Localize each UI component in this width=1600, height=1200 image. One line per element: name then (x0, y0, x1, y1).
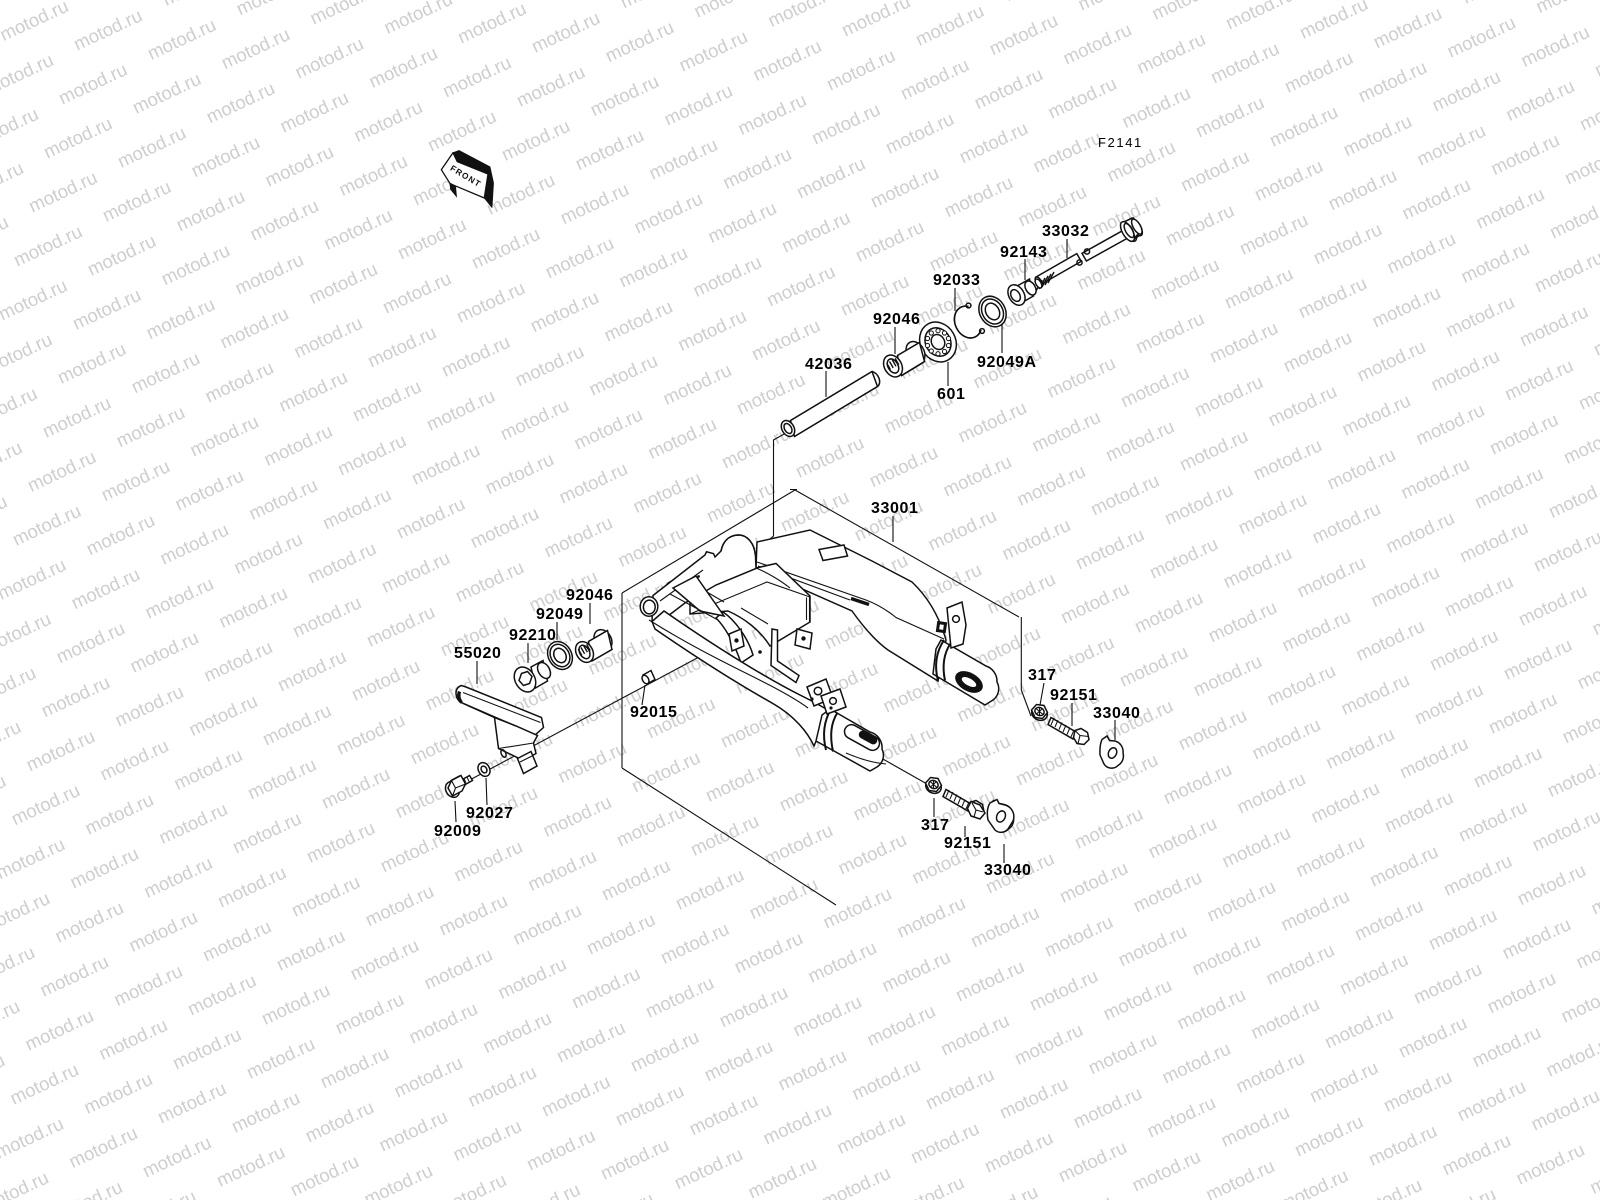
svg-text:33040: 33040 (1093, 705, 1141, 722)
svg-text:92049: 92049 (536, 606, 584, 623)
svg-text:92015: 92015 (630, 704, 678, 721)
svg-text:42036: 42036 (805, 356, 853, 373)
svg-text:92151: 92151 (1050, 687, 1098, 704)
svg-text:317: 317 (1028, 667, 1057, 684)
svg-text:92049A: 92049A (977, 354, 1037, 371)
svg-text:33032: 33032 (1042, 223, 1090, 240)
svg-text:92027: 92027 (466, 805, 514, 822)
svg-text:92143: 92143 (1000, 244, 1048, 261)
svg-text:92046: 92046 (873, 311, 921, 328)
svg-text:92009: 92009 (434, 823, 482, 840)
svg-text:92046: 92046 (566, 587, 614, 604)
svg-text:601: 601 (937, 386, 966, 403)
svg-text:33040: 33040 (984, 862, 1032, 879)
svg-text:92210: 92210 (509, 627, 557, 644)
svg-text:55020: 55020 (454, 645, 502, 662)
svg-text:92151: 92151 (944, 835, 992, 852)
svg-text:317: 317 (921, 817, 950, 834)
svg-text:F2141: F2141 (1098, 135, 1143, 150)
svg-text:33001: 33001 (871, 500, 919, 517)
svg-text:92033: 92033 (933, 272, 981, 289)
